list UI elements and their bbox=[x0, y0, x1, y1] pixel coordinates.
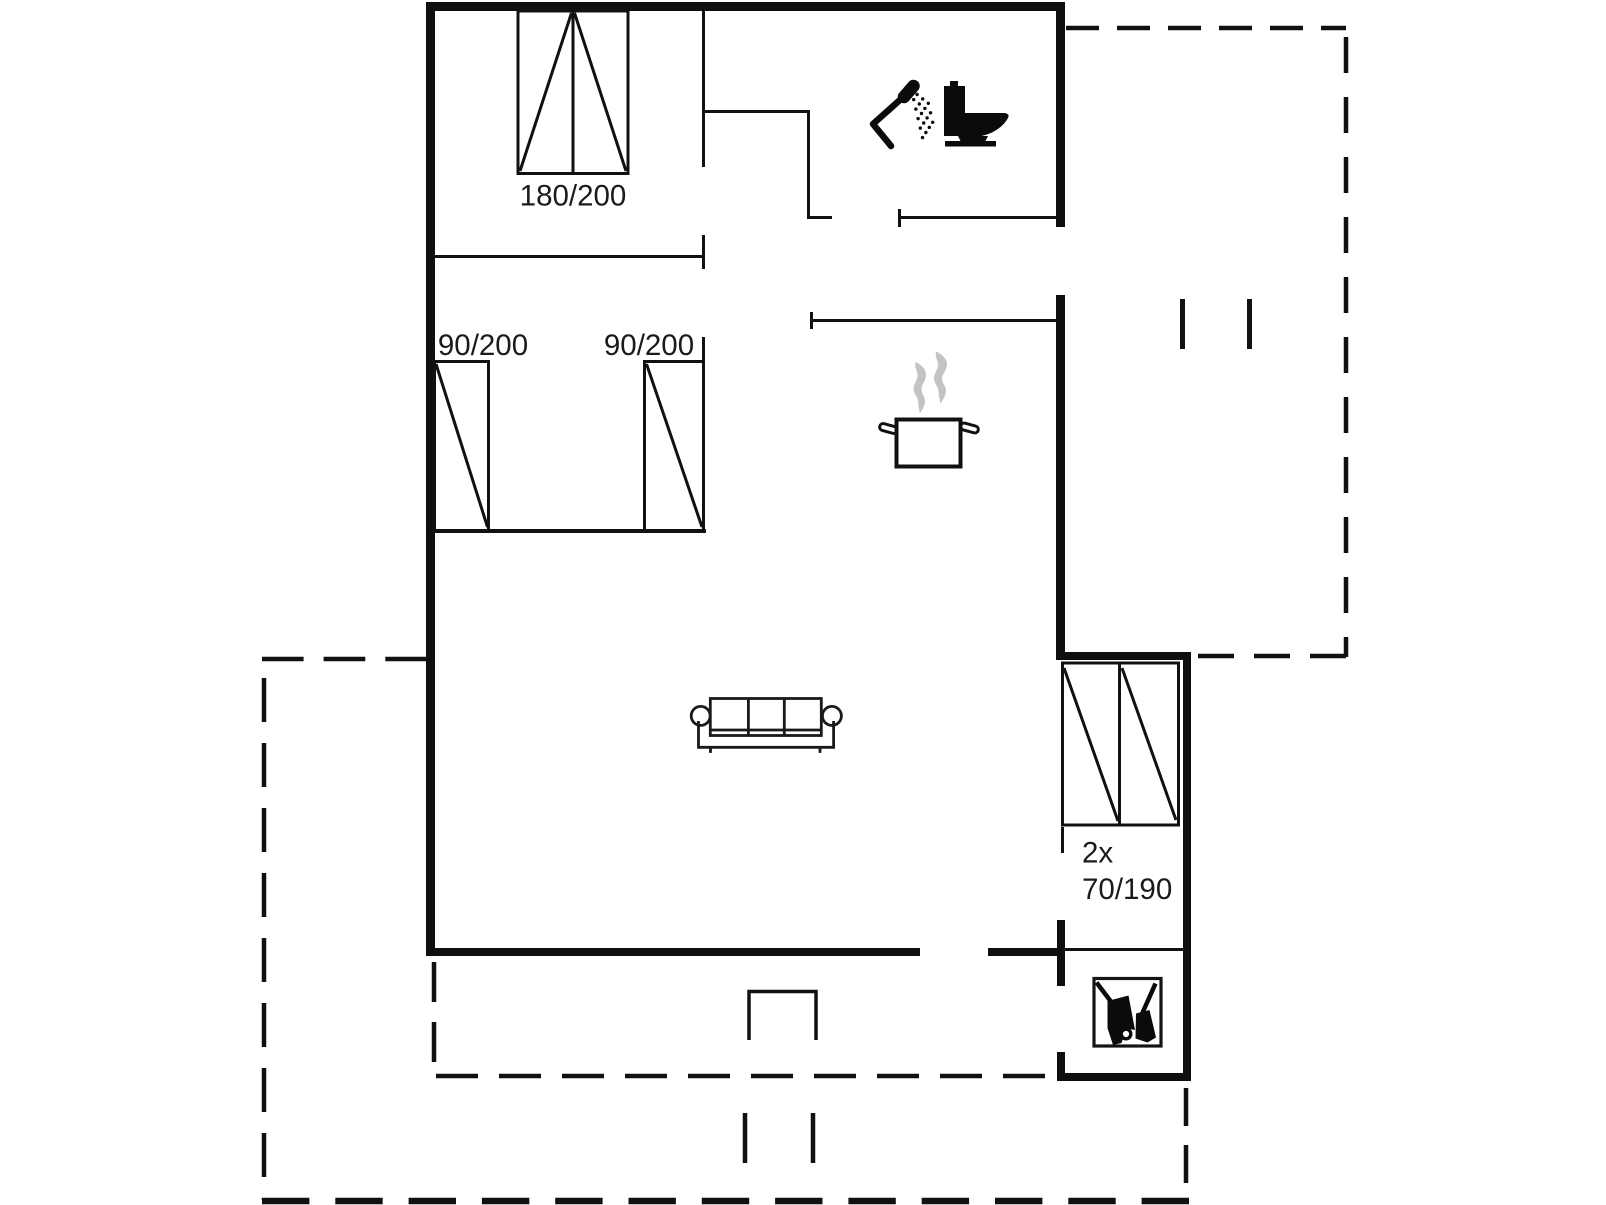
svg-text:90/200: 90/200 bbox=[604, 329, 694, 362]
svg-text:2x: 2x bbox=[1082, 837, 1113, 870]
svg-text:90/200: 90/200 bbox=[438, 329, 528, 362]
svg-text:70/190: 70/190 bbox=[1082, 873, 1172, 906]
svg-text:180/200: 180/200 bbox=[520, 180, 627, 213]
